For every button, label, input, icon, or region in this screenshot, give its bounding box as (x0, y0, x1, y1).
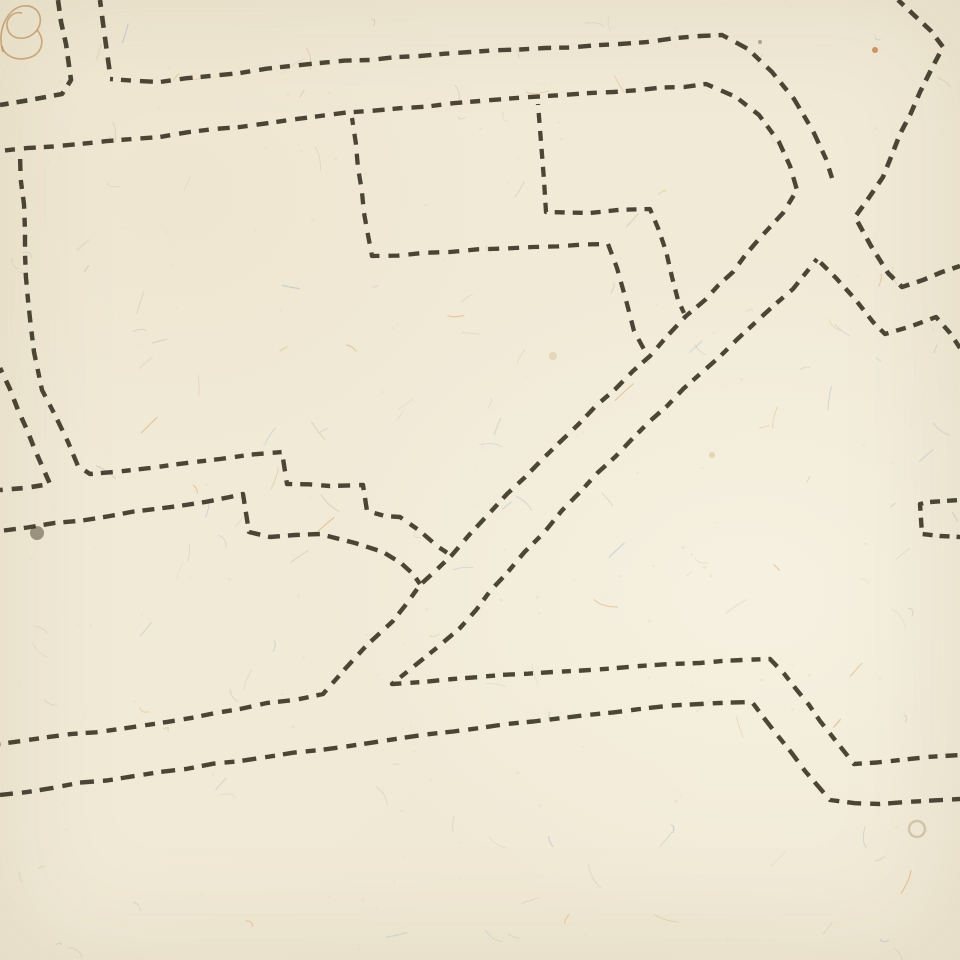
dashed-boundary-diagonal-road-lower-line-and-bottom-upper-road (392, 259, 960, 764)
dashed-boundary-top-street-lower-line-and-main-diagonal (0, 84, 797, 744)
dashed-boundary-right-edge-bracket (920, 500, 960, 537)
dashed-boundary-center-branch-outline (538, 104, 684, 313)
dashed-boundary-stepped-lower-line (0, 494, 420, 584)
pen-flourish (2, 30, 42, 59)
dashed-boundary-left-long-line-with-steps (20, 153, 452, 556)
antique-map-scan (0, 0, 960, 960)
dashed-boundary-top-left-inner-vertical (100, 0, 110, 74)
map-drawing (0, 0, 960, 960)
pen-flourish (1, 6, 40, 52)
dashed-boundary-northeast-zigzag (855, 0, 960, 287)
dashed-boundary-center-block-outline (352, 118, 646, 353)
dashed-boundary-bottom-lower-road (0, 702, 960, 804)
dashed-boundary-top-street-upper-line (110, 35, 832, 178)
